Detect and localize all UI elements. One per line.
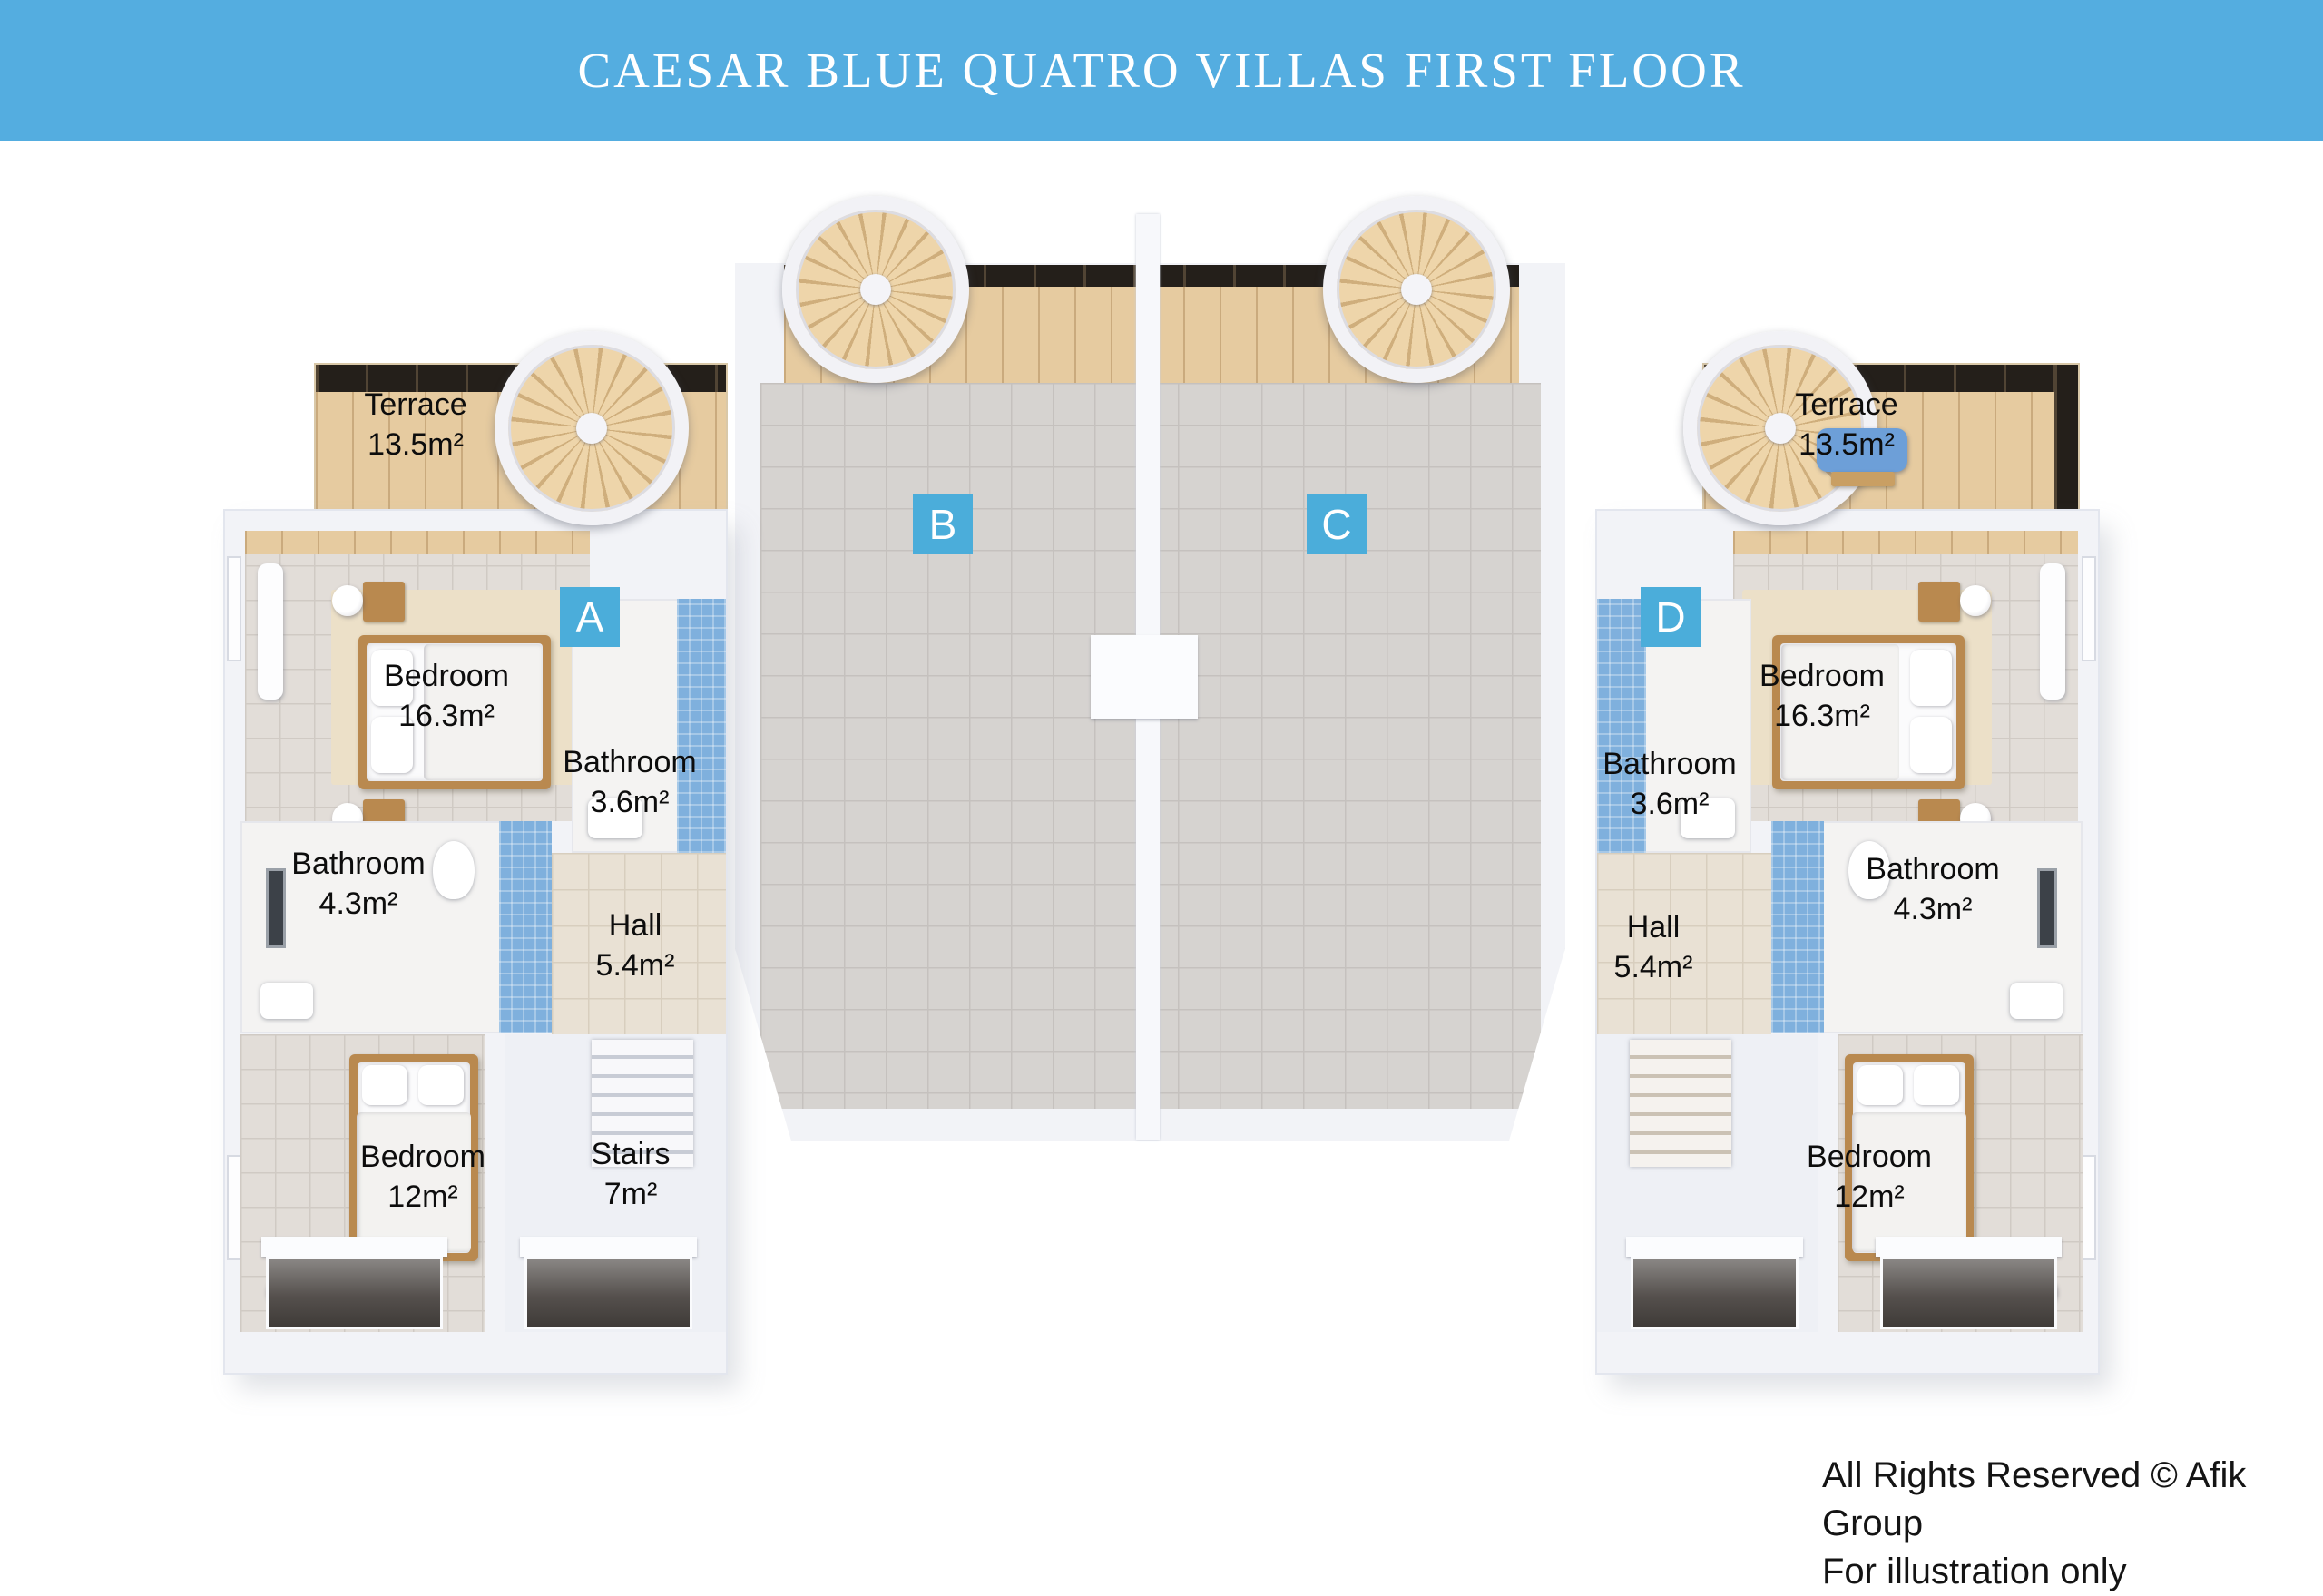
room-area: 12m² xyxy=(1742,1177,1996,1217)
spiral-staircase-b xyxy=(782,196,969,383)
spiral-center-post xyxy=(860,274,891,305)
room-label-bathroom-ensuite-a: Bathroom 3.6m² xyxy=(521,742,739,822)
room-name: Terrace xyxy=(307,385,524,425)
room-name: Stairs xyxy=(522,1134,740,1174)
page-title: CAESAR BLUE QUATRO VILLAS FIRST FLOOR xyxy=(0,0,2323,141)
window-slot xyxy=(227,556,241,661)
stairwell-void xyxy=(1631,1257,1799,1329)
unit-badge-c: C xyxy=(1307,494,1367,554)
pillow xyxy=(362,1065,407,1105)
room-area: 16.3m² xyxy=(1695,696,1949,736)
terrace-threshold xyxy=(1733,531,2078,554)
nightstand xyxy=(363,582,405,622)
window-slot xyxy=(227,1155,241,1260)
room-area: 13.5m² xyxy=(1747,425,1946,465)
spiral-center-post xyxy=(576,413,607,444)
room-area: 12m² xyxy=(296,1177,550,1217)
unit-badge-b: B xyxy=(913,494,973,554)
radiator xyxy=(258,563,283,700)
room-label-bathroom-ensuite-d: Bathroom 3.6m² xyxy=(1561,744,1779,824)
pillow xyxy=(1857,1065,1903,1105)
stairwell-sill xyxy=(1876,1237,2062,1257)
room-name: Bathroom xyxy=(521,742,739,782)
room-area: 3.6m² xyxy=(521,782,739,822)
radiator xyxy=(2040,563,2065,700)
room-label-stairs-a: Stairs 7m² xyxy=(522,1134,740,1214)
room-area: 5.4m² xyxy=(526,945,744,985)
stairwell-sill xyxy=(1626,1237,1803,1257)
room-name: Hall xyxy=(526,906,744,945)
room-area: 7m² xyxy=(522,1174,740,1214)
terrace-d-glass-side xyxy=(2054,365,2078,512)
unit-badge-d: D xyxy=(1641,587,1701,647)
window-slot xyxy=(2082,556,2096,661)
room-label-bedroom-second-d: Bedroom 12m² xyxy=(1742,1137,1996,1217)
sink xyxy=(260,983,313,1019)
room-name: Hall xyxy=(1544,907,1762,947)
copyright-note: All Rights Reserved © Afik Group For ill… xyxy=(1822,1452,2312,1596)
copyright-line: All Rights Reserved © Afik Group xyxy=(1822,1452,2312,1548)
terrace-table xyxy=(1831,472,1895,486)
room-area: 3.6m² xyxy=(1561,784,1779,824)
room-label-bathroom-d: Bathroom 4.3m² xyxy=(1824,849,2042,929)
room-name: Bedroom xyxy=(296,1137,550,1177)
stairwell-void xyxy=(524,1257,692,1329)
room-name: Terrace xyxy=(1747,385,1946,425)
room-label-terrace-a: Terrace 13.5m² xyxy=(307,385,524,465)
room-area: 4.3m² xyxy=(250,884,467,924)
sink xyxy=(2010,983,2063,1019)
bedside-lamp xyxy=(1960,585,1991,616)
room-name: Bedroom xyxy=(319,656,573,696)
stairwell-sill xyxy=(261,1237,447,1257)
terrace-threshold xyxy=(245,531,590,554)
disclaimer-line: For illustration only xyxy=(1822,1548,2312,1596)
pillow xyxy=(418,1065,464,1105)
nightstand xyxy=(1918,582,1960,622)
room-label-bedroom-second-a: Bedroom 12m² xyxy=(296,1137,550,1217)
room-name: Bedroom xyxy=(1695,656,1949,696)
bath-mosaic-wall xyxy=(1771,821,1824,1033)
room-area: 5.4m² xyxy=(1544,947,1762,987)
room-name: Bathroom xyxy=(250,844,467,884)
spiral-staircase-c xyxy=(1323,196,1510,383)
window-slot xyxy=(2082,1155,2096,1260)
room-label-hall-d: Hall 5.4m² xyxy=(1544,907,1762,987)
roof-access-box xyxy=(1091,635,1198,719)
pillow xyxy=(1914,1065,1959,1105)
room-label-bedroom-main-a: Bedroom 16.3m² xyxy=(319,656,573,736)
bedside-lamp xyxy=(332,585,363,616)
room-name: Bedroom xyxy=(1742,1137,1996,1177)
title-banner: CAESAR BLUE QUATRO VILLAS FIRST FLOOR xyxy=(0,0,2323,141)
villa-d-block: D Bedroom 16.3m² Bathroom 3.6m² Bathroom… xyxy=(1597,511,2098,1373)
room-area: 4.3m² xyxy=(1824,889,2042,929)
villa-a-block: A Bedroom 16.3m² Bathroom 3.6m² Bathroom… xyxy=(225,511,726,1373)
spiral-center-post xyxy=(1401,274,1432,305)
room-name: Bathroom xyxy=(1561,744,1779,784)
room-name: Bathroom xyxy=(1824,849,2042,889)
stairwell-sill xyxy=(520,1237,697,1257)
room-area: 13.5m² xyxy=(307,425,524,465)
staircase-treads xyxy=(1630,1040,1731,1167)
stairwell-void xyxy=(266,1257,443,1329)
stairwell-void xyxy=(1880,1257,2057,1329)
room-label-bedroom-main-d: Bedroom 16.3m² xyxy=(1695,656,1949,736)
room-label-bathroom-a: Bathroom 4.3m² xyxy=(250,844,467,924)
room-label-hall-a: Hall 5.4m² xyxy=(526,906,744,985)
room-area: 16.3m² xyxy=(319,696,573,736)
unit-badge-a: A xyxy=(560,587,620,647)
room-label-terrace-d: Terrace 13.5m² xyxy=(1747,385,1946,465)
